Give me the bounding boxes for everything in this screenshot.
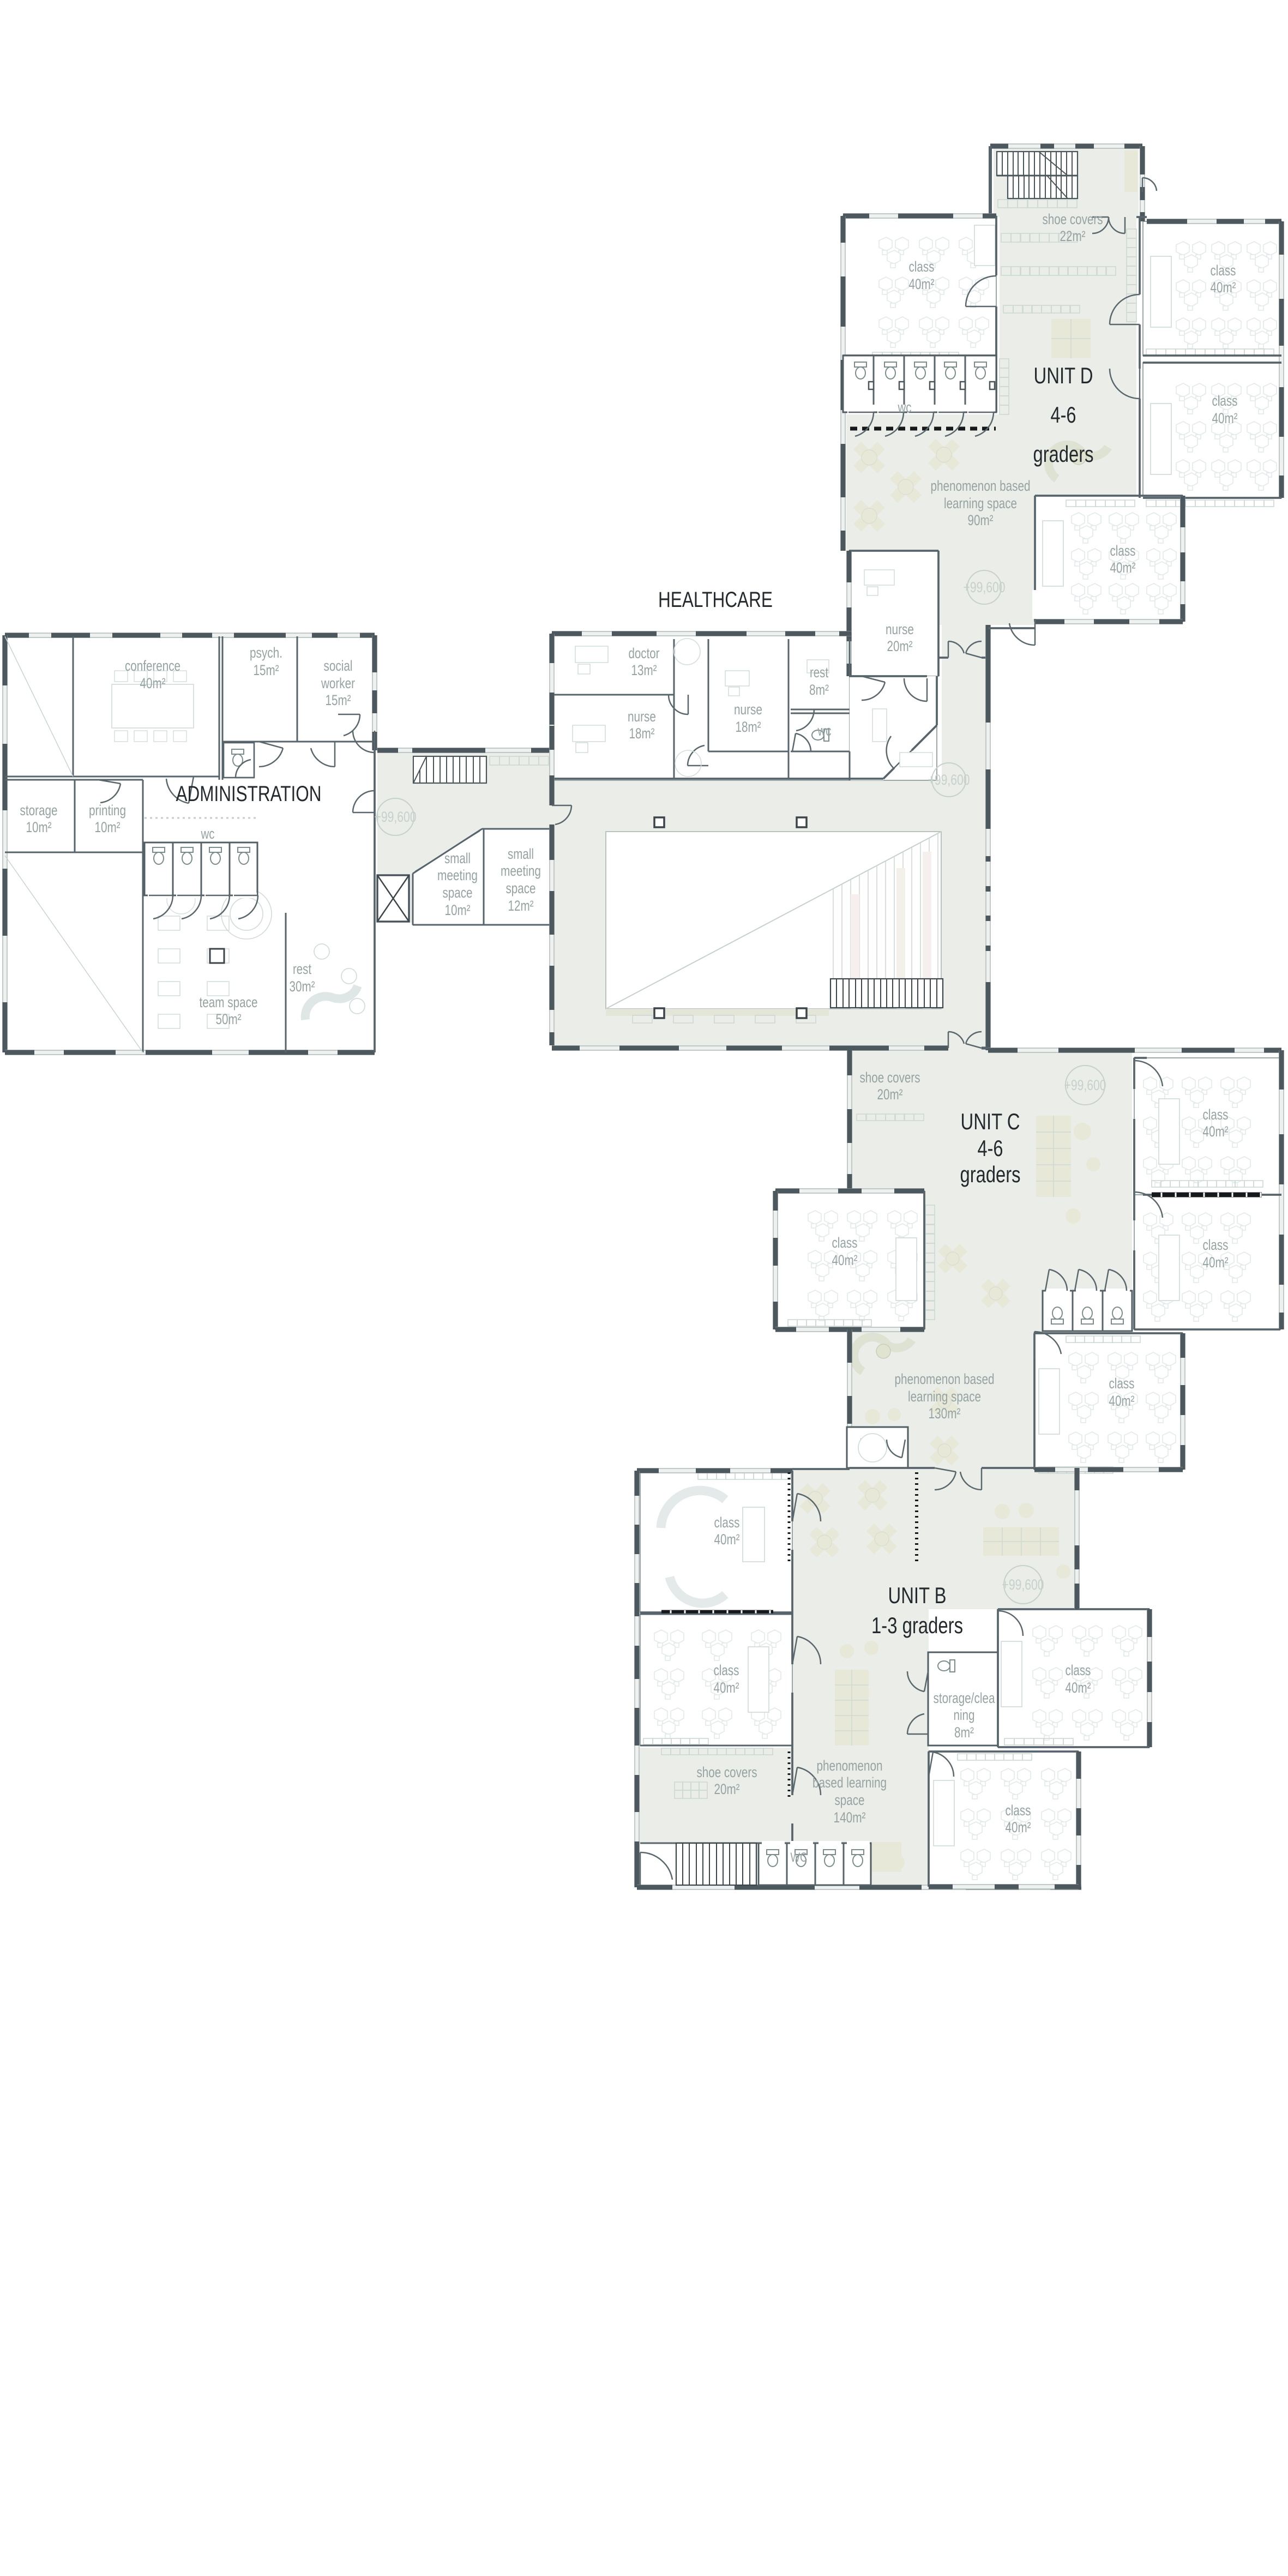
svg-text:18m²: 18m² (736, 719, 761, 735)
svg-text:ADMINISTRATION: ADMINISTRATION (176, 782, 322, 806)
svg-text:22m²: 22m² (1060, 228, 1086, 244)
svg-text:phenomenon based: phenomenon based (931, 478, 1031, 494)
svg-text:rest: rest (293, 961, 311, 977)
svg-text:class: class (1203, 1106, 1229, 1123)
svg-text:40m²: 40m² (1203, 1254, 1229, 1271)
svg-text:130m²: 130m² (929, 1405, 961, 1422)
svg-text:worker: worker (321, 675, 355, 691)
svg-text:class: class (1212, 393, 1238, 409)
svg-text:40m²: 40m² (714, 1680, 739, 1696)
svg-text:class: class (1211, 262, 1236, 279)
svg-text:class: class (1203, 1237, 1229, 1253)
svg-text:40m²: 40m² (1109, 1393, 1135, 1409)
svg-text:40m²: 40m² (1203, 1123, 1229, 1140)
svg-text:1-3 graders: 1-3 graders (871, 1612, 963, 1638)
svg-text:40m²: 40m² (1006, 1819, 1031, 1835)
svg-text:15m²: 15m² (254, 662, 279, 678)
svg-text:40m²: 40m² (714, 1531, 740, 1548)
svg-text:+99,600: +99,600 (928, 772, 970, 788)
svg-text:team space: team space (200, 994, 258, 1010)
svg-text:conference: conference (125, 658, 180, 674)
svg-text:+99,600: +99,600 (964, 579, 1006, 595)
svg-text:class: class (714, 1514, 740, 1531)
svg-text:8m²: 8m² (954, 1724, 974, 1741)
svg-text:class: class (1109, 1375, 1135, 1392)
svg-text:nurse: nurse (886, 621, 914, 637)
svg-text:small: small (508, 846, 534, 862)
svg-text:40m²: 40m² (909, 276, 935, 292)
svg-text:UNIT B: UNIT B (888, 1582, 947, 1608)
svg-text:18m²: 18m² (629, 725, 655, 742)
svg-text:meeting: meeting (501, 863, 541, 879)
svg-text:50m²: 50m² (216, 1011, 242, 1027)
svg-text:WC: WC (791, 1850, 808, 1865)
svg-text:ning: ning (954, 1707, 975, 1723)
svg-text:printing: printing (89, 802, 126, 818)
svg-text:20m²: 20m² (887, 638, 913, 654)
svg-text:wc: wc (817, 723, 832, 739)
svg-text:UNIT C: UNIT C (961, 1109, 1020, 1134)
svg-text:HEALTHCARE: HEALTHCARE (658, 588, 773, 612)
svg-text:phenomenon: phenomenon (817, 1758, 883, 1774)
svg-text:doctor: doctor (629, 645, 660, 661)
svg-text:space: space (506, 880, 536, 896)
svg-text:+99,600: +99,600 (1002, 1576, 1044, 1593)
svg-text:8m²: 8m² (809, 682, 829, 698)
svg-text:90m²: 90m² (968, 512, 994, 528)
svg-text:space: space (835, 1792, 865, 1808)
svg-text:storage: storage (20, 802, 58, 818)
svg-text:class: class (1006, 1802, 1031, 1819)
svg-text:class: class (1110, 543, 1136, 559)
svg-text:wc: wc (898, 399, 912, 416)
svg-text:40m²: 40m² (1211, 279, 1236, 296)
svg-text:shoe covers: shoe covers (860, 1069, 920, 1086)
svg-text:+99,600: +99,600 (375, 809, 417, 825)
svg-text:10m²: 10m² (95, 819, 121, 835)
svg-text:class: class (832, 1235, 858, 1251)
svg-text:15m²: 15m² (326, 692, 351, 708)
svg-text:class: class (1066, 1662, 1091, 1678)
svg-text:class: class (714, 1662, 739, 1678)
svg-text:10m²: 10m² (445, 902, 471, 918)
svg-text:based learning: based learning (812, 1774, 887, 1791)
svg-text:UNIT D: UNIT D (1034, 363, 1093, 388)
svg-text:10m²: 10m² (26, 819, 52, 835)
svg-text:shoe covers: shoe covers (1043, 211, 1103, 227)
svg-text:20m²: 20m² (714, 1781, 740, 1797)
svg-text:space: space (443, 884, 473, 901)
svg-text:140m²: 140m² (834, 1809, 866, 1826)
svg-text:4-6: 4-6 (1051, 402, 1076, 428)
svg-text:wc: wc (201, 826, 215, 842)
svg-text:storage/clea: storage/clea (934, 1690, 995, 1706)
svg-text:graders: graders (960, 1161, 1021, 1187)
svg-text:class: class (909, 258, 935, 275)
svg-text:13m²: 13m² (631, 662, 657, 678)
svg-text:+99,600: +99,600 (1064, 1077, 1106, 1093)
svg-text:12m²: 12m² (508, 898, 534, 914)
svg-text:40m²: 40m² (1212, 410, 1238, 426)
svg-text:graders: graders (1033, 441, 1094, 467)
svg-text:phenomenon based: phenomenon based (895, 1371, 995, 1387)
svg-text:40m²: 40m² (140, 675, 166, 691)
svg-text:20m²: 20m² (877, 1086, 903, 1103)
svg-text:meeting: meeting (437, 867, 478, 883)
svg-text:40m²: 40m² (1066, 1680, 1091, 1696)
svg-text:social: social (324, 658, 353, 674)
svg-text:small: small (444, 850, 471, 866)
svg-text:learning space: learning space (908, 1388, 981, 1405)
svg-text:learning space: learning space (944, 495, 1017, 511)
svg-text:30m²: 30m² (290, 978, 315, 995)
svg-text:40m²: 40m² (832, 1252, 858, 1268)
svg-text:nurse: nurse (734, 701, 762, 718)
svg-text:shoe covers: shoe covers (697, 1764, 757, 1780)
svg-text:nurse: nurse (628, 708, 656, 725)
svg-text:psych.: psych. (250, 645, 282, 661)
svg-text:rest: rest (810, 664, 828, 681)
svg-text:40m²: 40m² (1110, 559, 1136, 576)
svg-text:4-6: 4-6 (978, 1135, 1003, 1161)
